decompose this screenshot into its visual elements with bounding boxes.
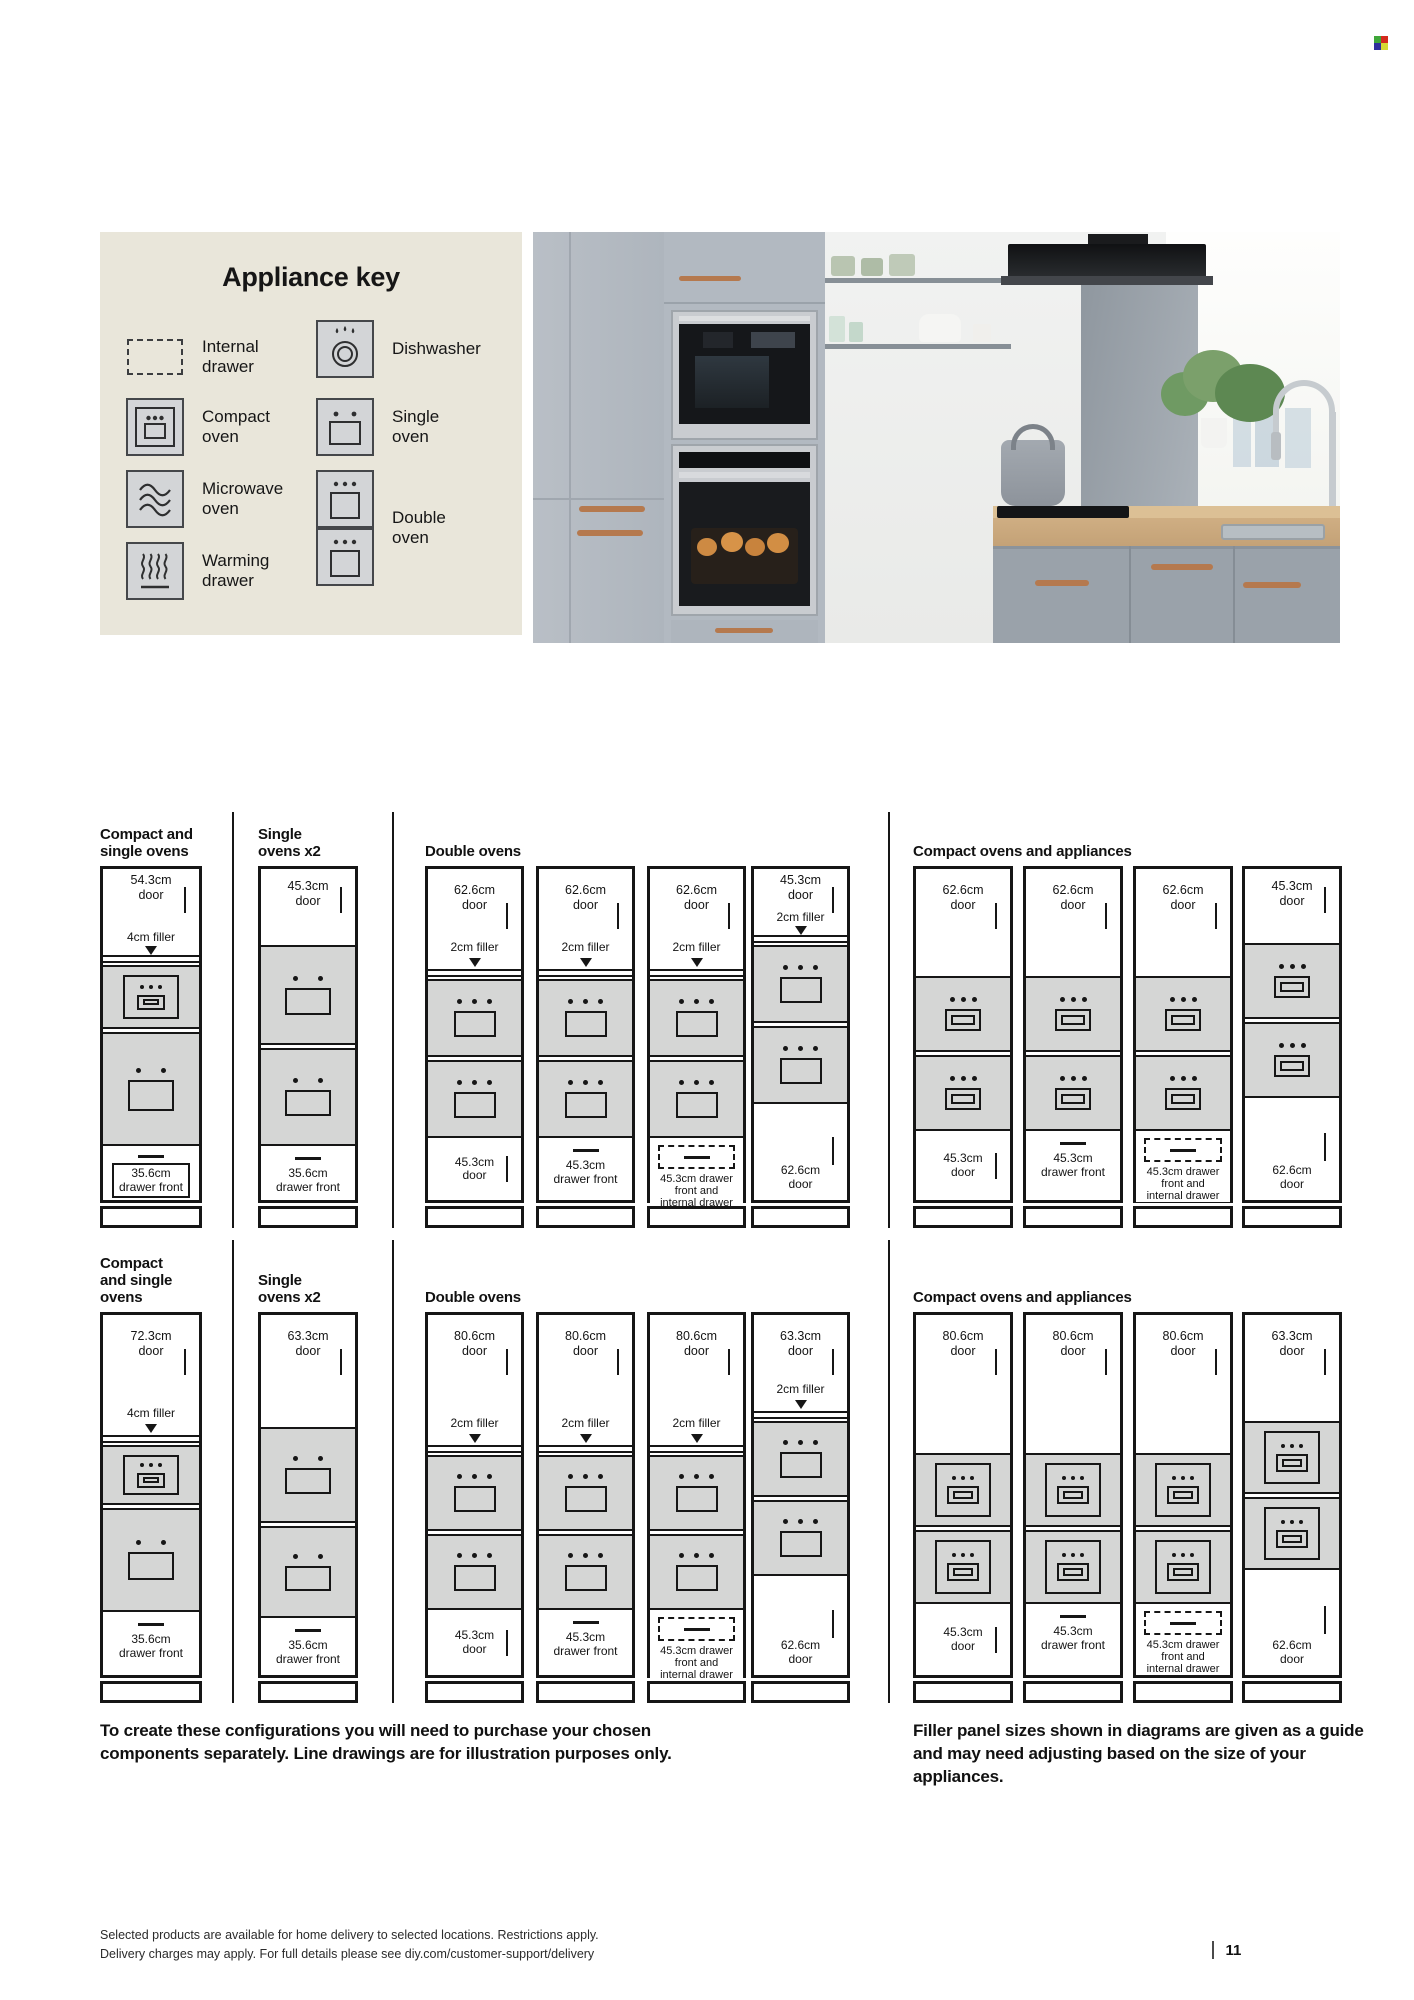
oven-unit-double	[428, 1060, 521, 1138]
dot-icon	[1080, 1553, 1084, 1557]
cabinet-handle	[1151, 564, 1213, 570]
internal-drawer-outline	[658, 1145, 735, 1169]
oven-dots-icon	[1281, 1520, 1303, 1524]
dot-icon	[293, 1554, 298, 1559]
measure-tick	[728, 903, 730, 929]
filler-arrow-icon	[580, 1434, 592, 1443]
oven-dots-icon	[140, 1463, 162, 1467]
dot-icon	[1172, 1553, 1176, 1557]
drawer-dash	[138, 1155, 164, 1158]
oven-door-icon	[780, 977, 822, 1003]
oven-dots-icon	[140, 985, 162, 989]
dot-icon	[694, 999, 699, 1004]
cabinet-column: 80.6cm door45.3cm drawer front	[1023, 1312, 1123, 1678]
canister	[849, 322, 863, 342]
oven-door-icon	[780, 1452, 822, 1478]
oven-unit-compact-sm	[1136, 1055, 1230, 1131]
cabinet-column: 62.6cm door45.3cm drawer front	[1023, 866, 1123, 1203]
oven-unit-single	[103, 1032, 199, 1146]
measure-tick	[184, 1349, 186, 1375]
dot-icon	[950, 997, 955, 1002]
filler-panel	[428, 969, 521, 977]
dot-icon	[694, 1474, 699, 1479]
dot-icon	[783, 1519, 788, 1524]
microwave-window	[695, 356, 769, 408]
cabinet-column: 80.6cm door2cm filler45.3cm drawer front	[536, 1312, 635, 1678]
dot-icon	[1172, 1476, 1176, 1480]
warming-drawer-icon	[126, 542, 184, 600]
key-item-label: Single oven	[392, 407, 439, 447]
oven-unit-double	[539, 1455, 632, 1531]
compact-oven-icon	[1155, 1463, 1211, 1517]
oven-door-icon	[1055, 1009, 1091, 1031]
compact-oven-icon	[1155, 1540, 1211, 1594]
wall-shelf	[821, 344, 1011, 349]
microwave-handle	[679, 316, 810, 321]
cabinet-column: 54.3cm door4cm filler35.6cm drawer front	[100, 866, 202, 1203]
oven-unit-double	[650, 1455, 743, 1531]
filler-panel	[428, 1445, 521, 1453]
compact-oven-icon	[935, 1540, 991, 1594]
oven-door-icon	[285, 1566, 331, 1591]
dot-icon	[472, 1474, 477, 1479]
internal-drawer-icon	[126, 328, 184, 386]
internal-drawer-outline	[1144, 1138, 1222, 1162]
dot-icon	[1299, 1520, 1303, 1524]
cabinet-bottom: 62.6cm door	[754, 1104, 847, 1200]
drawer-dash	[1170, 1622, 1196, 1625]
oven-unit-double	[754, 1421, 847, 1497]
dot-icon	[598, 1474, 603, 1479]
door-section: 63.3cm door	[261, 1315, 355, 1427]
door-section: 62.6cm door2cm filler	[539, 869, 632, 969]
page-number-value: 11	[1226, 1942, 1242, 1959]
tall-cabinets	[533, 232, 664, 643]
dot-icon	[1301, 1043, 1306, 1048]
oven-dots-icon	[679, 1553, 714, 1558]
key-item-label: Dishwasher	[392, 339, 481, 359]
oven-food	[697, 538, 717, 556]
plinth	[1133, 1206, 1233, 1228]
oven-unit-single	[103, 1508, 199, 1612]
door-size-label: 45.3cm door	[943, 1152, 982, 1179]
key-item-label: Microwave oven	[202, 479, 283, 519]
key-item-internal-drawer: Internal drawer	[126, 328, 259, 386]
filler-arrow-icon	[469, 958, 481, 967]
dot-icon	[1071, 1553, 1075, 1557]
plinth	[913, 1681, 1013, 1703]
measure-tick	[1324, 1133, 1326, 1161]
oven-dots-icon	[783, 965, 818, 970]
key-item-label: Compact oven	[202, 407, 270, 447]
door-size-label-wrap: 62.6cm door	[1245, 1164, 1339, 1191]
group-divider	[232, 812, 234, 1228]
compact-oven-icon	[126, 398, 184, 456]
oven-unit-compact	[1245, 1497, 1339, 1570]
oven-door-icon	[1057, 1563, 1089, 1581]
measure-tick	[506, 903, 508, 929]
dot-icon	[140, 1463, 144, 1467]
cabinet-bottom: 45.3cm door	[428, 1610, 521, 1675]
oven-dots-icon	[1281, 1444, 1303, 1448]
filler-panel	[650, 1445, 743, 1453]
oven-unit-double	[539, 979, 632, 1057]
oven-door-icon	[137, 1473, 165, 1488]
cabinet-bottom: 62.6cm door	[1245, 1098, 1339, 1200]
oven-door-icon	[780, 1531, 822, 1557]
oven-unit-double	[754, 1500, 847, 1576]
door-section: 62.6cm door2cm filler	[428, 869, 521, 969]
cabinet-bottom: 45.3cm drawer front and internal drawer	[650, 1610, 743, 1681]
group-title: Double ovens	[425, 812, 745, 860]
plinth	[258, 1206, 358, 1228]
dot-icon	[1290, 1043, 1295, 1048]
cabinet-handle	[577, 530, 643, 536]
drawer-front-label: 45.3cm drawer front	[539, 1159, 632, 1186]
filler-panel	[103, 955, 199, 963]
key-item-label: Warming drawer	[202, 551, 269, 591]
plinth	[647, 1681, 746, 1703]
measure-tick	[1324, 887, 1326, 913]
oven-dots-icon	[679, 1080, 714, 1085]
dot-icon	[970, 1476, 974, 1480]
dot-icon	[1082, 1076, 1087, 1081]
oven-unit-compact-sm	[916, 1055, 1010, 1131]
dot-icon	[487, 1080, 492, 1085]
door-size-label: 62.6cm door	[754, 1164, 847, 1191]
internal-drawer-label: 45.3cm drawer front and internal drawer	[1136, 1639, 1230, 1675]
oven-door-icon	[1057, 1486, 1089, 1504]
door-size-label-wrap: 62.6cm door	[754, 1639, 847, 1666]
dot-icon	[1062, 1553, 1066, 1557]
oven-dots-icon	[1060, 997, 1087, 1002]
cabinet-column: 63.3cm door62.6cm door	[1242, 1312, 1342, 1678]
oven-unit-double	[650, 1534, 743, 1610]
drawer-dash	[684, 1628, 710, 1631]
dot-icon	[783, 1440, 788, 1445]
dot-icon	[1190, 1476, 1194, 1480]
oven-unit-compact-sm	[1245, 1022, 1339, 1098]
key-item-warming-drawer: Warming drawer	[126, 542, 269, 600]
cabinet-column: 62.6cm door45.3cm drawer front and inter…	[1133, 866, 1233, 1203]
dot-icon	[813, 965, 818, 970]
plinth	[751, 1681, 850, 1703]
cabinet-bottom: 45.3cm drawer front	[539, 1138, 632, 1200]
dot-icon	[293, 976, 298, 981]
dot-icon	[568, 1474, 573, 1479]
appliance-key-panel: Appliance key Internal drawer Compact ov…	[100, 232, 522, 635]
dot-icon	[1080, 1476, 1084, 1480]
dot-icon	[709, 1080, 714, 1085]
measure-tick	[1215, 903, 1217, 929]
drawer-dash	[295, 1157, 321, 1160]
oven-dots-icon	[783, 1440, 818, 1445]
wall-shelf	[821, 278, 1011, 283]
group-title: Single ovens x2	[258, 1240, 428, 1306]
oven-dots-icon	[457, 999, 492, 1004]
dot-icon	[798, 1440, 803, 1445]
oven-dots-icon	[950, 997, 977, 1002]
door-size-label-wrap: 62.6cm door	[1245, 1639, 1339, 1666]
dot-icon	[583, 999, 588, 1004]
group-title: Double ovens	[425, 1240, 745, 1306]
cabinet-handle	[579, 506, 645, 512]
door-section: 80.6cm door	[1136, 1315, 1230, 1453]
cabinet-bottom: 45.3cm drawer front	[1026, 1604, 1120, 1675]
door-size-label: 45.3cm door	[455, 1156, 494, 1183]
dot-icon	[318, 976, 323, 981]
filler-size-label: 2cm filler	[754, 910, 847, 924]
oven-door-icon	[1165, 1088, 1201, 1110]
drawer-dash	[1170, 1149, 1196, 1152]
plinth	[536, 1681, 635, 1703]
oven-unit-double	[428, 1534, 521, 1610]
filler-arrow-icon	[145, 1424, 157, 1433]
oven-door-icon	[1055, 1088, 1091, 1110]
measure-tick	[184, 887, 186, 913]
oven-unit-compact	[103, 965, 199, 1029]
internal-drawer-label: 45.3cm drawer front and internal drawer	[650, 1173, 743, 1209]
kitchen-tap	[1273, 380, 1335, 446]
oven-unit-double	[539, 1534, 632, 1610]
group-title: Compact and single ovens	[100, 812, 270, 860]
filler-arrow-icon	[691, 958, 703, 967]
oven-dots-icon	[136, 1540, 166, 1545]
cabinet-column: 72.3cm door4cm filler35.6cm drawer front	[100, 1312, 202, 1678]
oven-door-icon	[565, 1092, 607, 1118]
dishwasher-icon	[316, 320, 374, 378]
dot-icon	[972, 997, 977, 1002]
drawer-dash	[573, 1621, 599, 1624]
drawer-dash	[138, 1623, 164, 1626]
door-size-label: 62.6cm door	[754, 1639, 847, 1666]
oven-door-icon	[454, 1565, 496, 1591]
group-title: Compact ovens and appliances	[913, 812, 1353, 860]
oven-unit-single	[261, 1526, 355, 1618]
tap-sprayer	[1271, 432, 1281, 460]
cabinet-column: 80.6cm door45.3cm drawer front and inter…	[1133, 1312, 1233, 1678]
dot-icon	[318, 1078, 323, 1083]
filler-arrow-icon	[795, 1400, 807, 1409]
dot-icon	[457, 1553, 462, 1558]
dot-icon	[598, 1080, 603, 1085]
cabinet-column: 62.6cm door2cm filler45.3cm door	[425, 866, 524, 1203]
filler-panel	[754, 1411, 847, 1419]
cabinet-bottom: 45.3cm drawer front and internal drawer	[1136, 1131, 1230, 1202]
canister	[829, 316, 845, 342]
kitchen-photo	[533, 232, 1340, 643]
dot-icon	[293, 1078, 298, 1083]
filler-arrow-icon	[691, 1434, 703, 1443]
dot-icon	[158, 985, 162, 989]
cabinet-column: 62.6cm door2cm filler45.3cm drawer front…	[647, 866, 746, 1203]
oven-handle	[679, 472, 810, 478]
cabinet-column: 80.6cm door2cm filler45.3cm door	[425, 1312, 524, 1678]
internal-drawer-label: 45.3cm drawer front and internal drawer	[650, 1645, 743, 1681]
cabinet-handle	[679, 276, 741, 281]
compact-oven-icon	[935, 1463, 991, 1517]
dot-icon	[709, 1553, 714, 1558]
oven-unit-double	[539, 1060, 632, 1138]
dot-icon	[1071, 997, 1076, 1002]
dot-icon	[1181, 1476, 1185, 1480]
measure-tick	[995, 1349, 997, 1375]
dot-icon	[1192, 997, 1197, 1002]
oven-dots-icon	[568, 999, 603, 1004]
oven-unit-compact-sm	[1026, 1055, 1120, 1131]
color-registration-mark	[1374, 36, 1388, 50]
cabinet-bottom: 45.3cm door	[428, 1138, 521, 1200]
oven-dots-icon	[457, 1080, 492, 1085]
oven-door-icon	[676, 1486, 718, 1512]
oven-unit-double	[754, 1026, 847, 1104]
door-section: 62.6cm door	[1136, 869, 1230, 976]
oven-door-icon	[285, 1468, 331, 1494]
measure-tick	[617, 903, 619, 929]
group-title: Single ovens x2	[258, 812, 428, 860]
dot-icon	[798, 1046, 803, 1051]
oven-door-icon	[947, 1486, 979, 1504]
dot-icon	[961, 1476, 965, 1480]
cabinet-bottom: 35.6cm drawer front	[261, 1618, 355, 1675]
dot-icon	[972, 1076, 977, 1081]
plinth	[258, 1681, 358, 1703]
door-size-label-wrap: 62.6cm door	[754, 1164, 847, 1191]
door-section: 45.3cm door2cm filler	[754, 869, 847, 935]
filler-size-label: 4cm filler	[103, 1406, 199, 1420]
cabinet-seam	[664, 302, 825, 304]
measure-tick	[832, 1137, 834, 1165]
oven-unit-compact-sm	[1245, 943, 1339, 1019]
drawer-dash	[1060, 1615, 1086, 1618]
cabinet-column: 80.6cm door45.3cm door	[913, 1312, 1013, 1678]
cabinet-handle	[715, 628, 773, 633]
measure-tick	[506, 1156, 508, 1182]
filler-size-label: 2cm filler	[539, 940, 632, 954]
dot-icon	[783, 965, 788, 970]
dot-icon	[583, 1474, 588, 1479]
oven-dots-icon	[457, 1553, 492, 1558]
dot-icon	[472, 1080, 477, 1085]
drawer-dash	[684, 1156, 710, 1159]
key-item-label: Double oven	[392, 508, 446, 548]
cabinet-seam	[1129, 546, 1131, 643]
cabinet-handle	[1243, 582, 1301, 588]
dot-icon	[472, 1553, 477, 1558]
dot-icon	[783, 1046, 788, 1051]
dot-icon	[568, 1080, 573, 1085]
cabinet-column: 63.3cm door35.6cm drawer front	[258, 1312, 358, 1678]
oven-food	[767, 533, 789, 553]
oven-dots-icon	[293, 1078, 323, 1083]
dot-icon	[709, 999, 714, 1004]
plinth	[536, 1206, 635, 1228]
oven-door-icon	[565, 1011, 607, 1037]
plinth	[425, 1681, 524, 1703]
dot-icon	[1170, 997, 1175, 1002]
cabinet-bottom: 45.3cm drawer front	[1026, 1131, 1120, 1200]
oven-unit-single	[261, 1427, 355, 1523]
cabinet-seam	[1233, 546, 1235, 643]
measure-tick	[1324, 1606, 1326, 1634]
cabinet-bottom: 62.6cm door	[754, 1576, 847, 1675]
door-section: 62.6cm door2cm filler	[650, 869, 743, 969]
key-item-single-oven: Single oven	[316, 398, 439, 456]
oven-dots-icon	[1062, 1476, 1084, 1480]
filler-panel	[650, 969, 743, 977]
filler-arrow-icon	[145, 946, 157, 955]
cabinet-column: 62.6cm door45.3cm door	[913, 866, 1013, 1203]
color-square-red	[1381, 36, 1388, 43]
color-square-blue	[1374, 43, 1381, 50]
group-divider	[232, 1240, 234, 1703]
oven-dots-icon	[1172, 1553, 1194, 1557]
door-section: 72.3cm door4cm filler	[103, 1315, 199, 1435]
dot-icon	[813, 1046, 818, 1051]
plinth	[100, 1681, 202, 1703]
page-number-divider	[1212, 1941, 1214, 1959]
mug	[861, 258, 883, 276]
measure-tick	[506, 1349, 508, 1375]
dot-icon	[694, 1080, 699, 1085]
oven-door-icon	[1274, 1055, 1310, 1077]
filler-arrow-icon	[580, 958, 592, 967]
oven-dots-icon	[1170, 1076, 1197, 1081]
dot-icon	[472, 999, 477, 1004]
measure-tick	[340, 1349, 342, 1375]
internal-drawer-label: 45.3cm drawer front and internal drawer	[1136, 1166, 1230, 1202]
page-number: 11	[1212, 1941, 1241, 1959]
oven-door-icon	[945, 1088, 981, 1110]
dot-icon	[487, 1553, 492, 1558]
dot-icon	[1281, 1520, 1285, 1524]
dot-icon	[598, 999, 603, 1004]
microwave-buttons	[703, 332, 733, 348]
oven-unit-double	[650, 1060, 743, 1138]
oven-door-icon	[947, 1563, 979, 1581]
oven-door-icon	[128, 1080, 174, 1111]
measure-tick	[1215, 1349, 1217, 1375]
oven-door-icon	[676, 1092, 718, 1118]
dot-icon	[457, 1474, 462, 1479]
oven-dots-icon	[568, 1080, 603, 1085]
dot-icon	[1290, 964, 1295, 969]
oven-door-icon	[1276, 1530, 1308, 1548]
door-size-label: 45.3cm door	[943, 1626, 982, 1653]
door-size-label: 45.3cm door	[455, 1629, 494, 1656]
microwave-oven-icon	[126, 470, 184, 528]
filler-panel	[754, 935, 847, 943]
appliance-key-title: Appliance key	[100, 232, 522, 293]
oven-dots-icon	[1279, 964, 1306, 969]
oven-dots-icon	[1170, 997, 1197, 1002]
note-components: To create these configurations you will …	[100, 1720, 690, 1766]
compact-oven-icon	[123, 975, 179, 1019]
door-section: 80.6cm door	[1026, 1315, 1120, 1453]
dot-icon	[1062, 1476, 1066, 1480]
door-section: 62.6cm door	[916, 869, 1010, 976]
filler-size-label: 2cm filler	[650, 1416, 743, 1430]
oven-door-icon	[676, 1565, 718, 1591]
dot-icon	[457, 999, 462, 1004]
dot-icon	[149, 1463, 153, 1467]
dot-icon	[952, 1553, 956, 1557]
drawer-dash	[295, 1629, 321, 1632]
oven-dots-icon	[1060, 1076, 1087, 1081]
cabinet-seam	[533, 498, 664, 500]
dot-icon	[798, 965, 803, 970]
dot-icon	[1279, 964, 1284, 969]
